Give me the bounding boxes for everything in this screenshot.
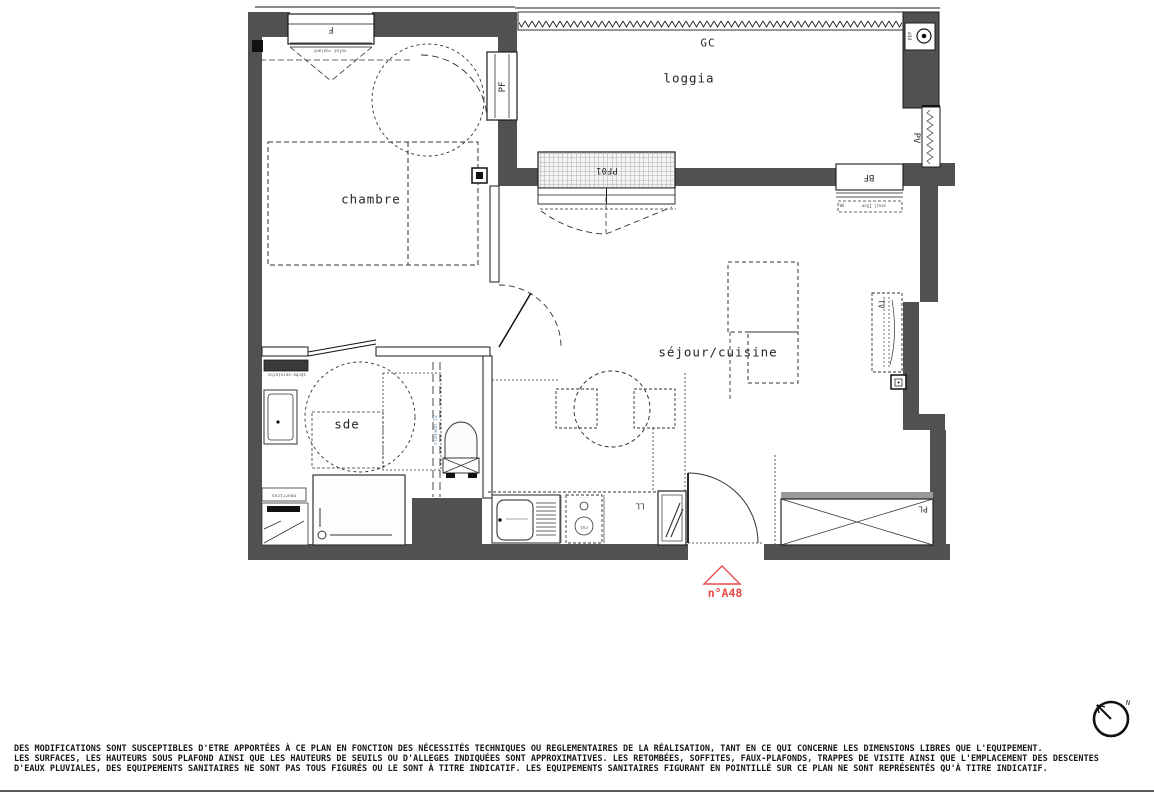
unit-number-label: n°A48 bbox=[708, 586, 743, 600]
kitchen-stove bbox=[566, 495, 602, 543]
kitchen-sink bbox=[492, 495, 560, 543]
window-f-label: F bbox=[328, 24, 333, 34]
floor-plan-drawing bbox=[0, 0, 1154, 800]
entrance-door bbox=[688, 473, 758, 543]
plumbing-manifold-label: nourrices bbox=[272, 493, 296, 498]
outline-lines bbox=[255, 7, 940, 8]
unit-triangle bbox=[704, 566, 740, 584]
disclaimer-text: DES MODIFICATIONS SONT SUSCEPTIBLES D'ET… bbox=[14, 744, 1144, 774]
shower-tray bbox=[313, 475, 405, 545]
wall-socket-box bbox=[472, 168, 487, 183]
window-pv-label: PV bbox=[911, 133, 921, 144]
disclaimer-line-2: LES SURFACES, LES HAUTEURS SOUS PLAFOND … bbox=[14, 754, 1144, 764]
closet-pl bbox=[781, 492, 933, 545]
tv-socket-box bbox=[891, 375, 906, 389]
window-pf01-label: PF01 bbox=[596, 165, 618, 175]
vanity-sink bbox=[264, 390, 297, 444]
electrical-box bbox=[252, 40, 263, 52]
window-pv bbox=[922, 105, 940, 167]
cloison-label: cloison 72 bbox=[433, 415, 439, 445]
vr-label: VR bbox=[840, 203, 845, 208]
compass-north-icon bbox=[1094, 702, 1128, 736]
room-label-sde: sde bbox=[334, 417, 360, 432]
bottom-divider bbox=[0, 790, 1154, 792]
sde-door bbox=[308, 340, 376, 356]
utility-column bbox=[658, 491, 686, 545]
guard-rail-gc-label: GC bbox=[700, 37, 715, 50]
door-pf-label: PF bbox=[498, 82, 508, 93]
floor-plan-page: F volet roulant PF GC loggia DEP PV PF01… bbox=[0, 0, 1154, 800]
room-label-chambre: chambre bbox=[341, 192, 401, 207]
duct-dep-icon bbox=[903, 12, 939, 108]
compass-north-label: N bbox=[1126, 699, 1130, 707]
chambre-door bbox=[499, 285, 561, 347]
disclaimer-line-3: D'EAUX PLUVIALES, DES EQUIPEMENTS SANITA… bbox=[14, 764, 1144, 774]
stove-cui-label: cui bbox=[580, 525, 588, 530]
wc-toilet bbox=[443, 422, 479, 478]
towel-radiator bbox=[264, 360, 308, 371]
tv-label: TV bbox=[877, 299, 886, 308]
window-bf-label: BF bbox=[864, 172, 875, 182]
washer-ll-label: LL bbox=[635, 502, 644, 511]
chambre-annotations bbox=[260, 44, 487, 265]
room-label-loggia: loggia bbox=[663, 71, 714, 86]
disclaimer-line-1: DES MODIFICATIONS SONT SUSCEPTIBLES D'ET… bbox=[14, 744, 1144, 754]
duct-dep-label: DEP bbox=[909, 32, 914, 40]
seuil-label: seuil 15cm bbox=[862, 204, 886, 209]
room-label-sejour-cuisine: séjour/cuisine bbox=[658, 345, 777, 360]
kitchen bbox=[488, 491, 687, 545]
window-f-note-label: volet roulant bbox=[314, 49, 347, 54]
guard-rail-gc bbox=[518, 12, 903, 30]
closet-pl-label: PL bbox=[918, 505, 928, 514]
towel-radiator-label: sèche-serviette bbox=[268, 373, 306, 378]
